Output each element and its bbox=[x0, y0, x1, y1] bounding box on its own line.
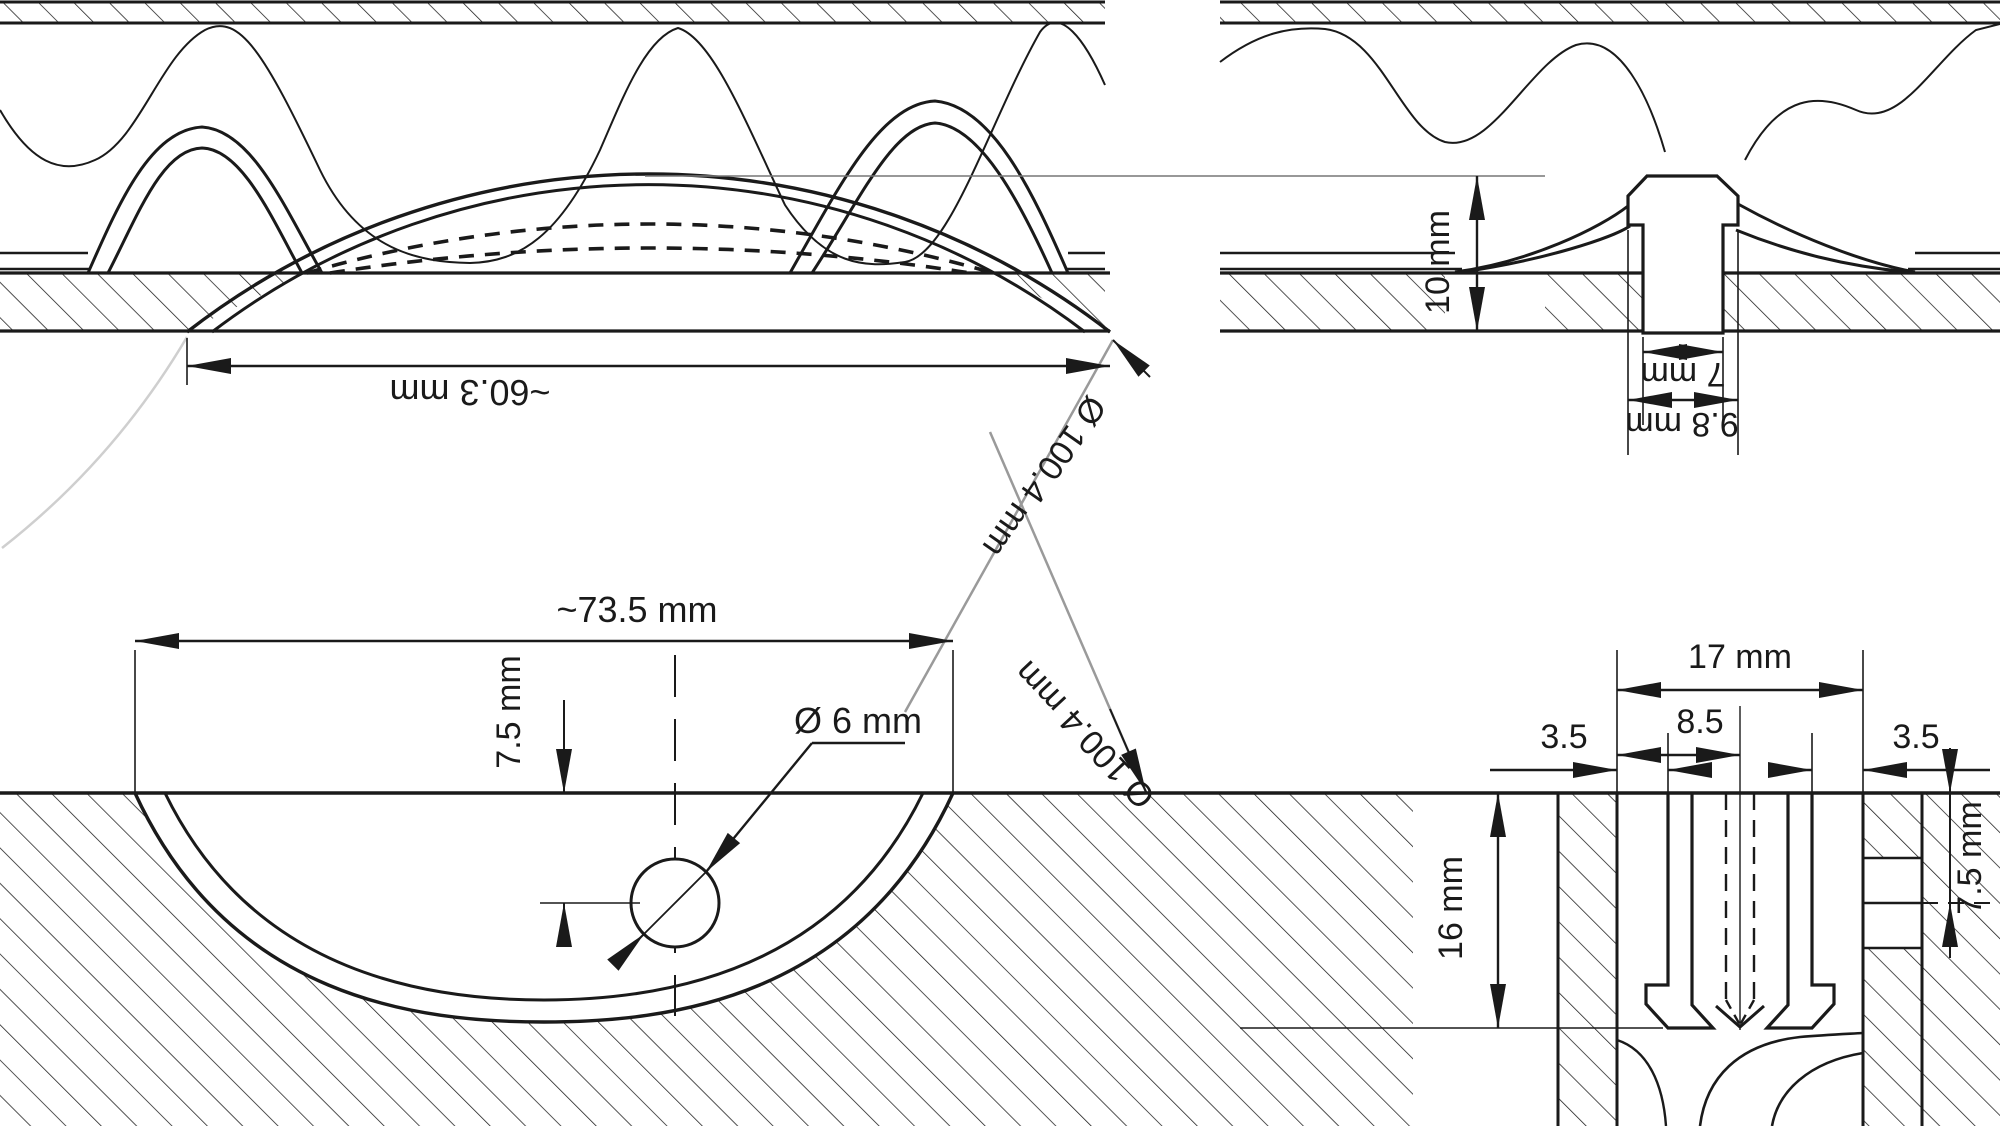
dim-17-label: 17 mm bbox=[1688, 638, 1792, 676]
pin-left-wall-hatch bbox=[1558, 793, 1617, 1126]
bump-over-plug-outer-right bbox=[1738, 204, 1915, 272]
dim-8-5: 8.5 bbox=[1617, 703, 1740, 755]
dome-membrane-dashed-inner bbox=[330, 248, 970, 273]
ghost-sphere-arc bbox=[2, 337, 187, 548]
dia-6-callout: Ø 6 mm bbox=[706, 700, 922, 872]
dim-10-label: 10 mm bbox=[1419, 210, 1457, 314]
pin-prong-right bbox=[1767, 793, 1834, 1028]
sphere-leader-top-arrow bbox=[1113, 340, 1150, 377]
membrane-bump2-inner bbox=[812, 123, 1052, 273]
panel-bowl-section: ~73.5 mm 7.5 mm Ø 6 mm Ø 100.4 mm bbox=[0, 589, 1558, 1126]
dome-outer-arc bbox=[187, 174, 1110, 332]
dim-9-8-label: 9.8 mm bbox=[1625, 405, 1738, 443]
top-band-hatch bbox=[0, 2, 1105, 23]
panel-plug-side-view: 10 mm 7 mm 9.8 mm bbox=[1220, 2, 2000, 455]
dim-8-5-label: 8.5 bbox=[1676, 703, 1723, 741]
dim-7-5l-label: 7.5 mm bbox=[490, 655, 528, 768]
top-band-hatch-right bbox=[1220, 2, 2000, 23]
dim-3-5r-label: 3.5 bbox=[1892, 718, 1939, 756]
membrane-bump1-inner bbox=[108, 148, 302, 273]
dia-6-leader bbox=[706, 743, 812, 872]
technical-drawing-page: ~60.3 mm Ø 100.4 mm 10 mm bbox=[0, 0, 2000, 1126]
dim-60-3-label: ~60.3 mm bbox=[389, 372, 550, 413]
pin-prong-left bbox=[1646, 793, 1713, 1028]
sphere-dia-label-top: Ø 100.4 mm bbox=[975, 389, 1113, 564]
membrane-flat-right bbox=[1066, 253, 1105, 269]
plug-outline bbox=[1628, 176, 1738, 333]
wire-fillet-left bbox=[1617, 1040, 1666, 1126]
dim-60-3: ~60.3 mm bbox=[187, 338, 1110, 413]
pin-right-wall-hatch-top bbox=[1863, 793, 1922, 858]
block-hatch bbox=[0, 793, 1413, 1126]
pin-right-wall-hatch-bottom bbox=[1863, 948, 1922, 1126]
dim-10: 10 mm bbox=[1419, 176, 1477, 331]
membrane-flat-right-panel-r bbox=[1908, 253, 2000, 269]
dim-73-5-label: ~73.5 mm bbox=[556, 589, 717, 630]
dim-3-5-right: 3.5 bbox=[1778, 718, 1990, 793]
fabric-wave-right-b bbox=[1745, 24, 2000, 160]
wire-curve-outer bbox=[1700, 1033, 1863, 1126]
dim-7-label: 7 mm bbox=[1641, 355, 1726, 393]
dim-16-label: 16 mm bbox=[1432, 856, 1470, 960]
membrane-flat-left bbox=[0, 253, 90, 269]
dim-73-5: ~73.5 mm bbox=[135, 589, 953, 793]
board-right-hatch-c bbox=[1723, 273, 2000, 331]
fabric-wave-right-a bbox=[1220, 28, 1665, 152]
wire-curve-inner bbox=[1772, 1053, 1863, 1126]
dim-3-5l-label: 3.5 bbox=[1540, 718, 1587, 756]
dim-7-5r-label: 7.5 mm bbox=[1951, 801, 1989, 914]
dia-6-label: Ø 6 mm bbox=[794, 700, 922, 741]
drawing-canvas: ~60.3 mm Ø 100.4 mm 10 mm bbox=[0, 0, 2000, 1126]
hole-diameter-arrow bbox=[614, 934, 644, 964]
board-right-hatch-a bbox=[1220, 273, 1445, 331]
